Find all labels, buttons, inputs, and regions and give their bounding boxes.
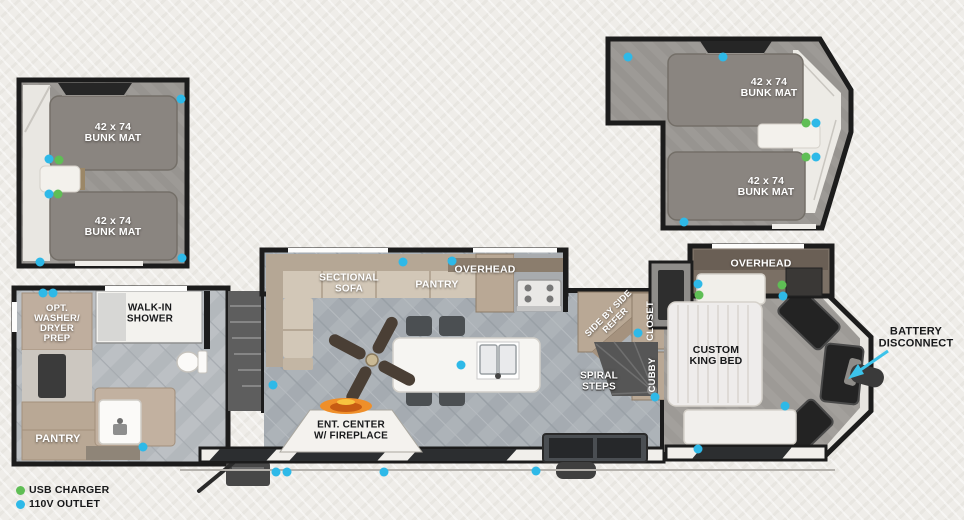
floorplan-page: 42 x 74 BUNK MAT 42 x 74 BUNK MAT 42 x 7… <box>0 0 964 520</box>
usb-charger-dot-icon <box>778 281 787 290</box>
legend-usb-label: USB CHARGER <box>29 484 109 496</box>
outlet-110v-dot-icon <box>457 361 466 370</box>
outlet-110v-dot-icon <box>139 443 148 452</box>
outlet-110v-dot-icon <box>45 155 54 164</box>
outlet-110v-dot-icon <box>178 254 187 263</box>
outlet-110v-dot-icon <box>680 218 689 227</box>
usb-charger-dot-icon <box>54 190 63 199</box>
outlet-110v-dot-icon <box>272 468 281 477</box>
fireplace-flame-icon <box>320 398 372 414</box>
outlet-110v-dot-icon <box>634 329 643 338</box>
outlet-110v-dot-icon <box>532 467 541 476</box>
usb-charger-dot-icon <box>16 486 25 495</box>
outlet-110v-dot-icon <box>39 289 48 298</box>
legend-110v-outlet: 110V OUTLET <box>16 497 109 511</box>
outlet-110v-dot-icon <box>651 393 660 402</box>
legend-outlet-label: 110V OUTLET <box>29 498 100 510</box>
legend: USB CHARGER 110V OUTLET <box>16 483 109 511</box>
usb-charger-dot-icon <box>695 291 704 300</box>
outlet-110v-dot-icon <box>812 153 821 162</box>
outlet-110v-dot-icon <box>781 402 790 411</box>
bathroom-section <box>12 286 228 464</box>
outlet-110v-dot-icon <box>719 53 728 62</box>
outlet-110v-dot-icon <box>694 445 703 454</box>
outlet-110v-dot-icon <box>16 500 25 509</box>
outlet-110v-dot-icon <box>269 381 278 390</box>
outlet-110v-dot-icon <box>380 468 389 477</box>
outlet-110v-dot-icon <box>49 289 58 298</box>
outlet-110v-dot-icon <box>45 190 54 199</box>
usb-charger-dot-icon <box>55 156 64 165</box>
outlet-110v-dot-icon <box>283 468 292 477</box>
outlet-110v-dot-icon <box>694 280 703 289</box>
rear-bunk-loft-inset <box>608 39 851 229</box>
outlet-110v-dot-icon <box>812 119 821 128</box>
bedroom-section <box>650 244 888 462</box>
usb-charger-dot-icon <box>802 119 811 128</box>
outlet-110v-dot-icon <box>779 292 788 301</box>
outlet-110v-dot-icon <box>448 257 457 266</box>
legend-usb-charger: USB CHARGER <box>16 483 109 497</box>
outlet-110v-dot-icon <box>399 258 408 267</box>
outlet-110v-dot-icon <box>177 95 186 104</box>
usb-charger-dot-icon <box>802 153 811 162</box>
front-bunk-loft-inset <box>19 80 187 266</box>
outlet-110v-dot-icon <box>36 258 45 267</box>
outlet-110v-dot-icon <box>624 53 633 62</box>
